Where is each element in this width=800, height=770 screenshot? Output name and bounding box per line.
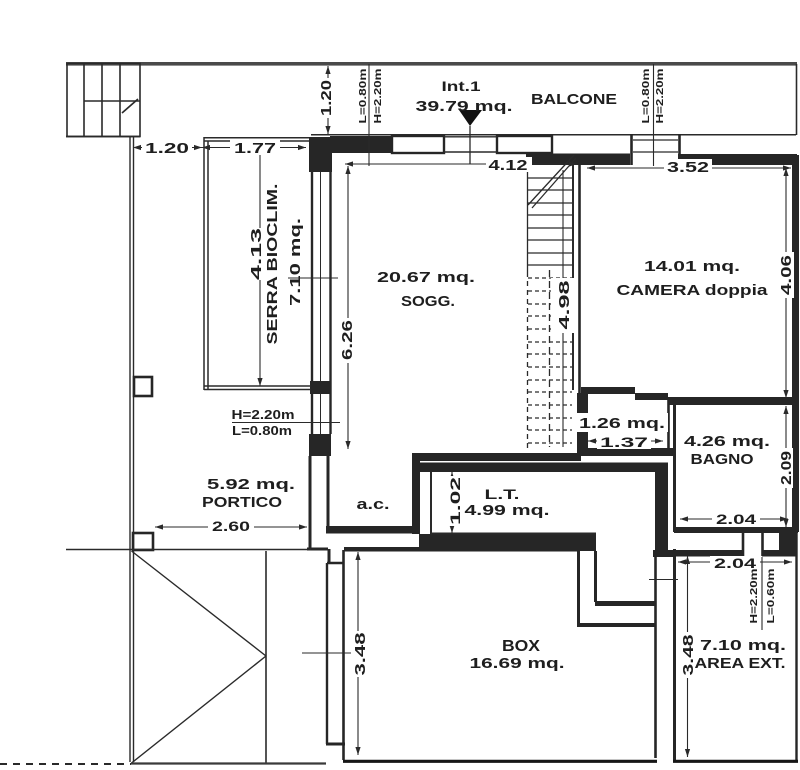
svg-text:SERRA BIOCLIM.: SERRA BIOCLIM.: [264, 184, 281, 345]
svg-text:4.99 mq.: 4.99 mq.: [465, 502, 550, 519]
svg-text:1.37: 1.37: [600, 434, 648, 450]
svg-text:AREA EXT.: AREA EXT.: [695, 655, 786, 672]
svg-text:L=0.80m: L=0.80m: [358, 68, 369, 123]
svg-text:5.92 mq.: 5.92 mq.: [207, 476, 295, 493]
svg-text:20.67 mq.: 20.67 mq.: [377, 269, 475, 286]
svg-text:L.T.: L.T.: [485, 486, 520, 502]
svg-text:H=2.20m: H=2.20m: [655, 68, 666, 123]
svg-text:2.60: 2.60: [212, 518, 250, 534]
svg-text:3.48: 3.48: [680, 635, 697, 676]
svg-text:16.69 mq.: 16.69 mq.: [470, 655, 565, 672]
svg-text:H=2.20m: H=2.20m: [373, 68, 384, 123]
svg-text:6.26: 6.26: [339, 320, 356, 360]
svg-text:3.52: 3.52: [667, 159, 709, 176]
svg-text:2.04: 2.04: [716, 511, 756, 527]
svg-text:Int.1: Int.1: [442, 78, 481, 94]
svg-text:BOX: BOX: [502, 638, 540, 655]
svg-text:4.13: 4.13: [248, 228, 265, 280]
svg-text:a.c.: a.c.: [357, 496, 390, 513]
svg-text:1.77: 1.77: [234, 140, 276, 157]
svg-text:3.48: 3.48: [352, 633, 369, 676]
svg-text:4.12: 4.12: [489, 157, 528, 174]
svg-text:2.09: 2.09: [778, 451, 795, 485]
svg-text:SOGG.: SOGG.: [401, 293, 455, 310]
svg-text:4.26 mq.: 4.26 mq.: [684, 433, 770, 450]
svg-text:L=0.60m: L=0.60m: [766, 568, 777, 623]
svg-text:4.98: 4.98: [556, 281, 573, 330]
svg-text:BAGNO: BAGNO: [691, 451, 754, 468]
svg-text:1.26 mq.: 1.26 mq.: [579, 415, 665, 432]
svg-text:BALCONE: BALCONE: [531, 91, 617, 108]
svg-text:4.06: 4.06: [778, 255, 795, 295]
svg-text:PORTICO: PORTICO: [202, 494, 282, 511]
svg-text:1.20: 1.20: [145, 140, 189, 157]
svg-text:39.79 mq.: 39.79 mq.: [416, 98, 513, 115]
svg-text:7.10 mq.: 7.10 mq.: [700, 637, 786, 654]
svg-text:CAMERA doppia: CAMERA doppia: [617, 282, 769, 299]
svg-text:H=2.20m: H=2.20m: [749, 568, 760, 623]
svg-text:H=2.20m: H=2.20m: [232, 407, 295, 422]
svg-text:7.10 mq.: 7.10 mq.: [287, 218, 304, 306]
svg-text:14.01 mq.: 14.01 mq.: [644, 258, 740, 275]
svg-text:1.02: 1.02: [447, 477, 463, 525]
svg-text:L=0.80m: L=0.80m: [641, 68, 652, 123]
svg-text:1.20: 1.20: [318, 80, 335, 116]
svg-text:L=0.80m: L=0.80m: [232, 423, 292, 438]
